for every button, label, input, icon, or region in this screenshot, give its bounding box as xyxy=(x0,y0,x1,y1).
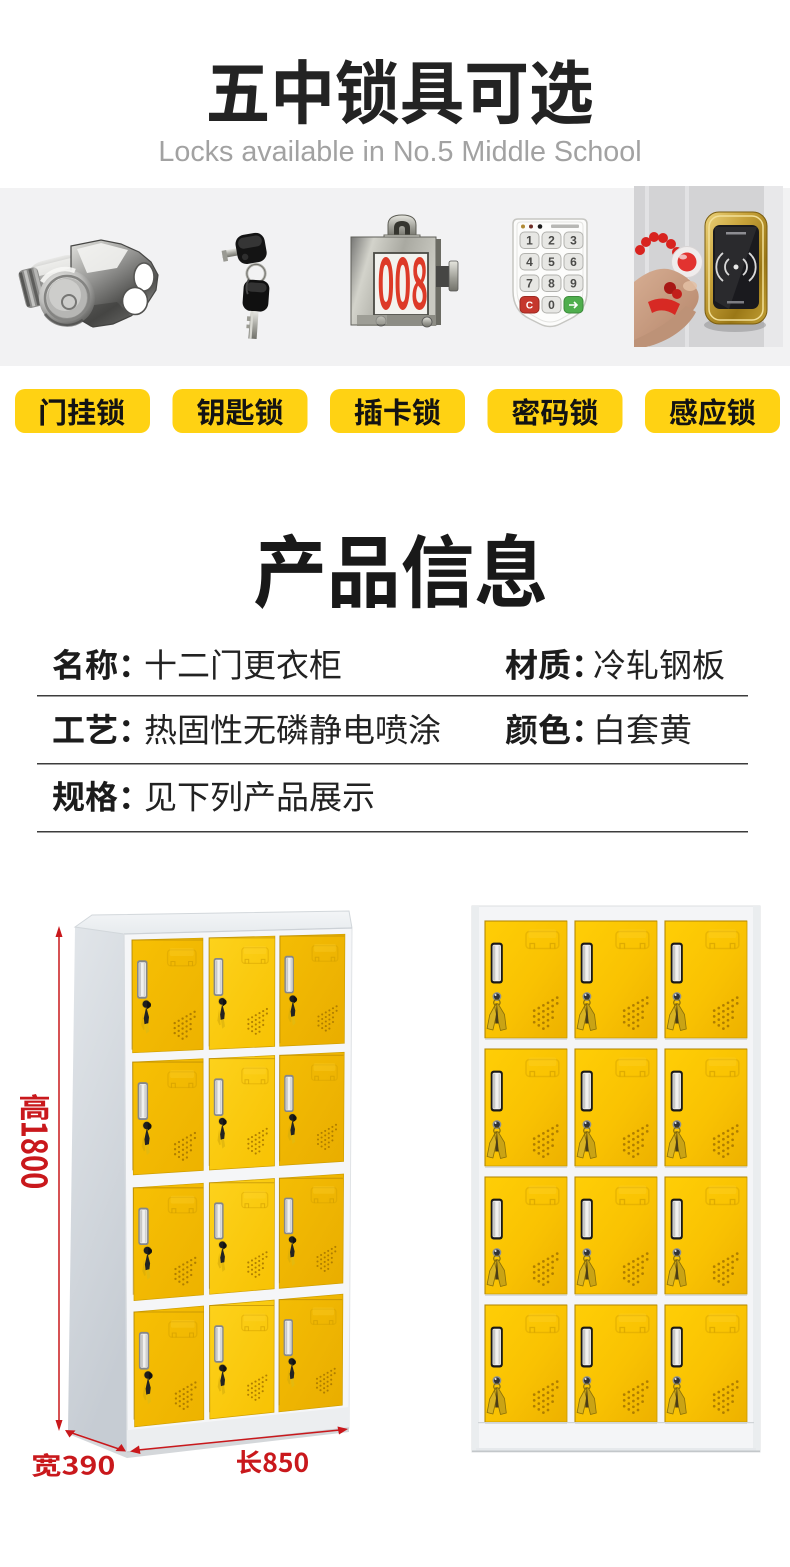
svg-text:9: 9 xyxy=(570,277,577,291)
svg-text:3: 3 xyxy=(570,234,577,248)
svg-text:8: 8 xyxy=(548,277,555,291)
svg-text:C: C xyxy=(526,301,533,312)
svg-text:1: 1 xyxy=(526,234,533,248)
svg-text:7: 7 xyxy=(526,277,533,291)
svg-text:2: 2 xyxy=(548,234,555,248)
svg-text:Locks available in No.5 Middle: Locks available in No.5 Middle School xyxy=(158,136,641,168)
svg-text:5: 5 xyxy=(548,255,555,269)
svg-text:4: 4 xyxy=(526,255,533,269)
svg-text:0: 0 xyxy=(548,298,555,312)
svg-text:6: 6 xyxy=(570,255,577,269)
